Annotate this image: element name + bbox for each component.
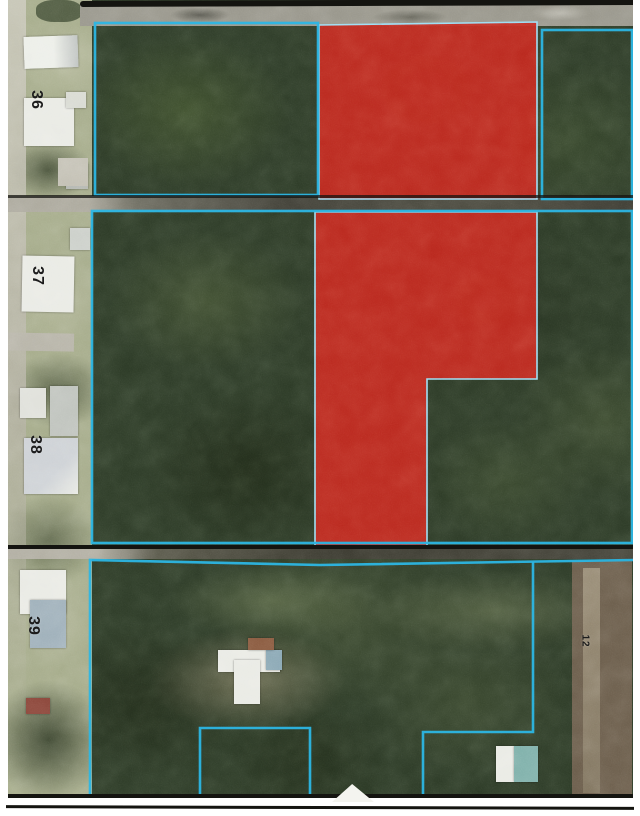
middle-road-upper (8, 196, 634, 212)
east-dirt-strip (572, 561, 632, 798)
house (514, 746, 538, 782)
right-page-margin (633, 0, 640, 816)
driveway (2, 332, 74, 351)
house (24, 438, 78, 494)
road-edge-line-upper (8, 195, 634, 198)
road-edge-line-lower (8, 545, 634, 549)
house (66, 92, 86, 108)
house (266, 650, 282, 670)
house (234, 660, 260, 704)
north-road (80, 5, 634, 26)
house (23, 35, 78, 69)
shed (248, 638, 274, 650)
aerial-parcel-map-page: 3637383912 (0, 0, 640, 816)
east-dirt-driveway (583, 568, 600, 793)
driveway (58, 158, 88, 186)
house (22, 256, 75, 313)
shed (50, 386, 78, 436)
left-page-margin (0, 0, 8, 816)
shed (26, 698, 50, 714)
shed (70, 228, 90, 250)
house (496, 746, 514, 782)
top-left-trees (36, 0, 82, 22)
shed (20, 388, 46, 418)
house (30, 600, 66, 648)
